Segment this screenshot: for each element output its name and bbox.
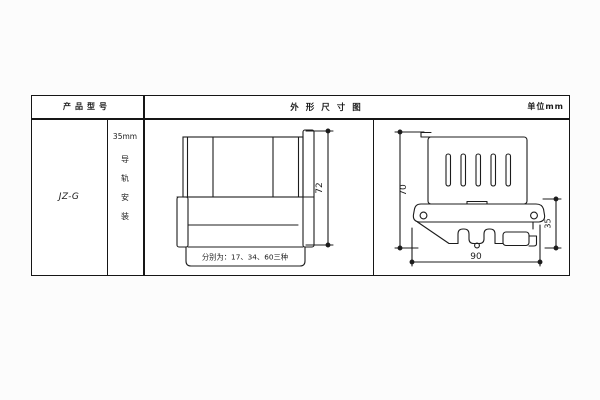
views-divider [373, 118, 374, 275]
mount-char-2: 轨 [121, 169, 129, 188]
side-body-outline [428, 137, 527, 204]
rail-spec-label: 35mm [107, 130, 143, 142]
front-left-flange [177, 197, 188, 247]
model-column-divider [143, 96, 145, 275]
side-clamp-bar [413, 204, 544, 222]
side-height-dim-label: 70 [399, 184, 409, 196]
drawing-sheet: 产品型号 外形尺寸图 单位mm JZ-G 35mm 导 轨 安 装 [0, 0, 600, 400]
side-clamp-hole-left [420, 212, 427, 219]
side-width-dot-left [410, 260, 414, 264]
dimension-drawing-title: 外形尺寸图 [143, 95, 515, 118]
side-view-drawing: 70 35 90 [388, 122, 570, 274]
front-width-note: 分别为：17、34、60三种 [202, 253, 288, 262]
front-height-dim-label: 72 [315, 182, 325, 193]
side-clip-dot-bottom [554, 246, 558, 250]
mount-char-4: 装 [121, 207, 129, 226]
model-value: JZ-G [31, 118, 107, 276]
side-latch-box [503, 232, 529, 246]
side-width-dot-right [538, 260, 542, 264]
mount-char-1: 导 [121, 150, 129, 169]
product-model-header: 产品型号 [31, 95, 143, 118]
unit-label: 单位mm [500, 95, 564, 118]
side-latch-ear [529, 236, 537, 246]
front-right-flange [303, 130, 314, 247]
front-dim-dot-bottom [326, 243, 330, 247]
side-height-dot-top [398, 130, 402, 134]
side-rail-hook [418, 222, 459, 244]
side-clip-dot-top [554, 197, 558, 201]
front-body-outline [183, 137, 303, 197]
mount-vertical-label: 导 轨 安 装 [107, 150, 143, 226]
header-divider-line [32, 118, 569, 120]
side-clip-dim-label: 35 [544, 218, 553, 228]
mount-char-3: 安 [121, 188, 129, 207]
side-body-top-step [421, 133, 431, 138]
front-view-drawing: 72 分别为：17、34、60三种 [160, 122, 342, 274]
side-width-dim-label: 90 [470, 252, 482, 262]
side-rail-teeth [458, 229, 503, 244]
side-clamp-hole-right [531, 212, 538, 219]
side-height-dot-bottom [398, 246, 402, 250]
side-vent-slots [446, 154, 511, 186]
front-dim-dot-top [326, 129, 330, 133]
